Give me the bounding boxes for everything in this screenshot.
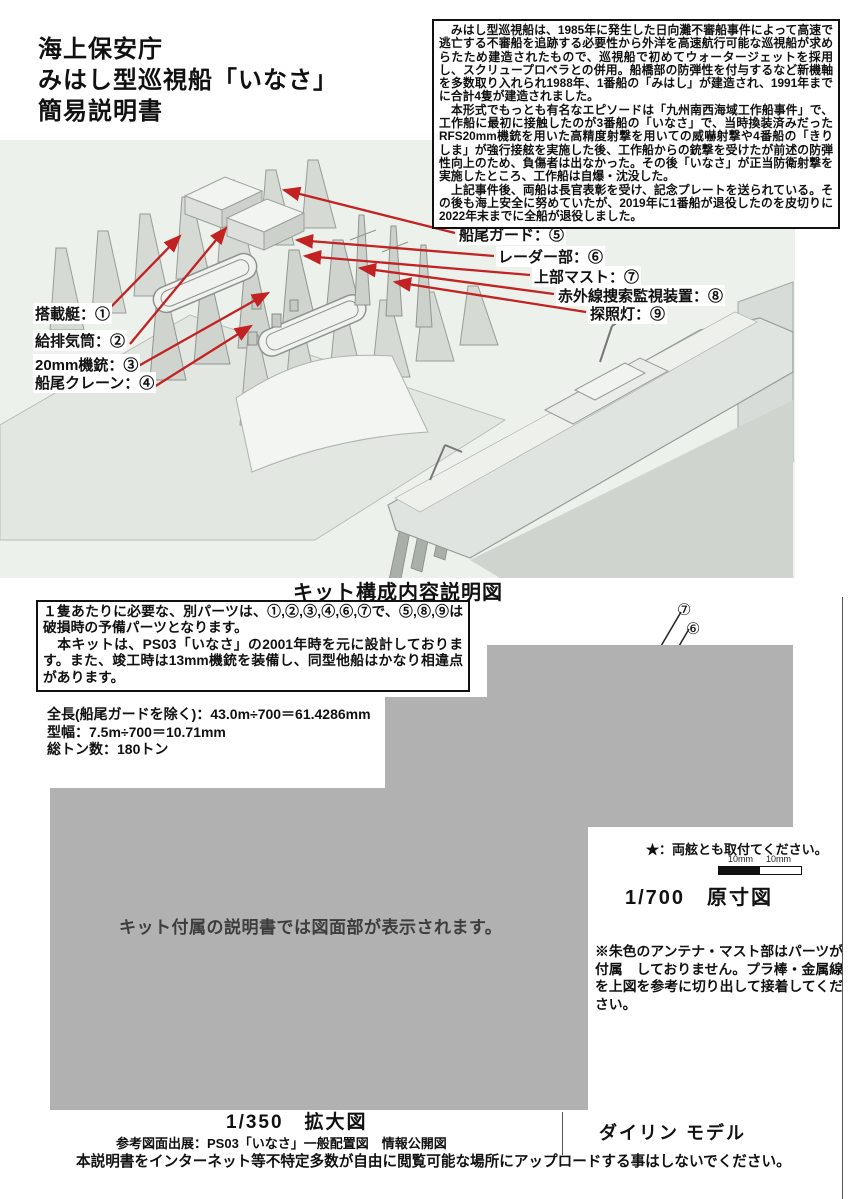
callout-leader-lines: [650, 595, 710, 650]
antenna-note: ※朱色のアンテナ・マスト部はパーツが付属 しておりません。プラ棒・金属線を上図を…: [595, 943, 843, 1013]
part-label-searchlight: 探照灯：⑨: [588, 303, 667, 324]
scale-title-1-700: 1/700 原寸図: [625, 881, 773, 910]
parts-note-paragraph-1: １隻あたりに必要な、別パーツは、①,②,③,④,⑥,⑦で、⑤,⑧,⑨は破損時の予…: [43, 604, 463, 637]
scale-bar: [718, 866, 802, 875]
small-frame-line: [562, 1112, 563, 1155]
enlarged-view-title: 1/350 拡大図: [226, 1107, 368, 1134]
scale-bar-filled-half: [719, 867, 760, 874]
upload-warning: 本説明書をインターネット等不特定多数が自由に閲覧可能な場所にアップロードする事は…: [76, 1150, 791, 1171]
parts-note-box: １隻あたりに必要な、別パーツは、①,②,③,④,⑥,⑦で、⑤,⑧,⑨は破損時の予…: [36, 600, 470, 692]
part-label-upper-mast: 上部マスト：⑦: [532, 266, 641, 287]
scale-label-left: 10mm: [728, 854, 753, 864]
brand-name: ダイリン モデル: [599, 1119, 746, 1145]
history-paragraph-2: 本形式でもっとも有名なエピソードは「九州南西海域工作船事件」で、工作船に最初に接…: [439, 104, 833, 184]
history-paragraph-3: 上記事件後、両船は長官表彰を受け、記念プレートを送られている。その後も海上安全に…: [439, 184, 833, 224]
parts-note-paragraph-2: 本キットは、PS03「いなさ」の2001年時を元に設計しております。また、竣工時…: [43, 637, 463, 686]
blanked-drawing-area-main: [50, 788, 588, 1110]
scale-label-right: 10mm: [766, 854, 791, 864]
part-label-funnel: 給排気筒：②: [33, 330, 127, 351]
page-title: 海上保安庁 みはし型巡視船「いなさ」 簡易説明書: [38, 34, 338, 127]
history-paragraph-1: みはし型巡視船は、1985年に発生した日向灘不審船事件によって高速で逃亡する不審…: [439, 24, 833, 104]
history-info-box: みはし型巡視船は、1985年に発生した日向灘不審船事件によって高速で逃亡する不審…: [432, 19, 840, 229]
instruction-sheet-page: 海上保安庁 みはし型巡視船「いなさ」 簡易説明書: [0, 0, 848, 1199]
ship-specs: 全長(船尾ガードを除く)：43.0m÷700＝61.4286mm 型幅：7.5m…: [47, 706, 371, 759]
part-label-radar: レーダー部：⑥: [496, 246, 605, 267]
right-frame-line: [842, 597, 843, 1199]
part-label-boat: 搭載艇：①: [33, 303, 112, 324]
blanked-area-note: キット付属の説明書では図面部が表示されます。: [119, 913, 502, 938]
part-label-stern-crane: 船尾クレーン：④: [33, 372, 156, 393]
